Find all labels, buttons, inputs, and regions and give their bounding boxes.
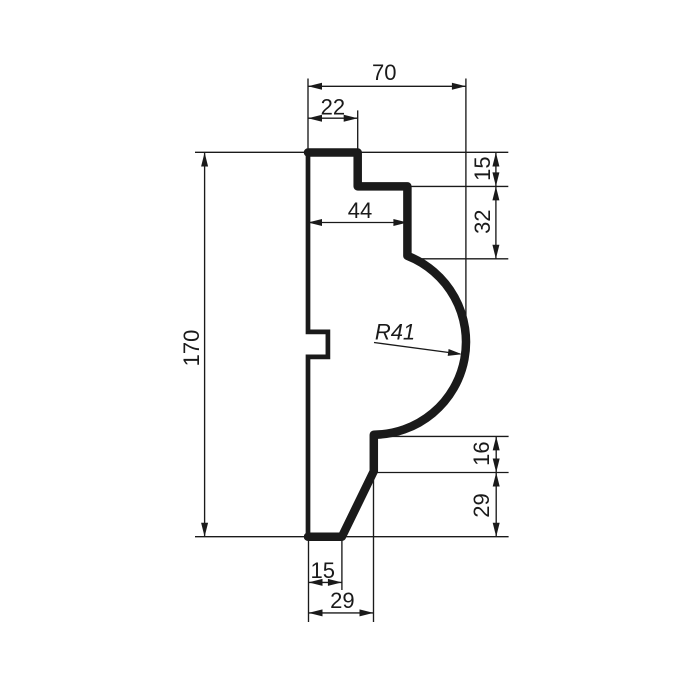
svg-text:R41: R41 bbox=[375, 320, 415, 345]
svg-text:32: 32 bbox=[470, 209, 495, 233]
svg-text:29: 29 bbox=[330, 588, 354, 613]
svg-text:44: 44 bbox=[348, 198, 372, 223]
svg-text:15: 15 bbox=[311, 558, 335, 583]
svg-text:29: 29 bbox=[469, 493, 494, 517]
svg-text:16: 16 bbox=[469, 441, 494, 465]
svg-text:170: 170 bbox=[179, 330, 204, 367]
svg-text:15: 15 bbox=[470, 156, 495, 180]
svg-text:70: 70 bbox=[372, 60, 396, 85]
svg-text:22: 22 bbox=[321, 95, 345, 120]
